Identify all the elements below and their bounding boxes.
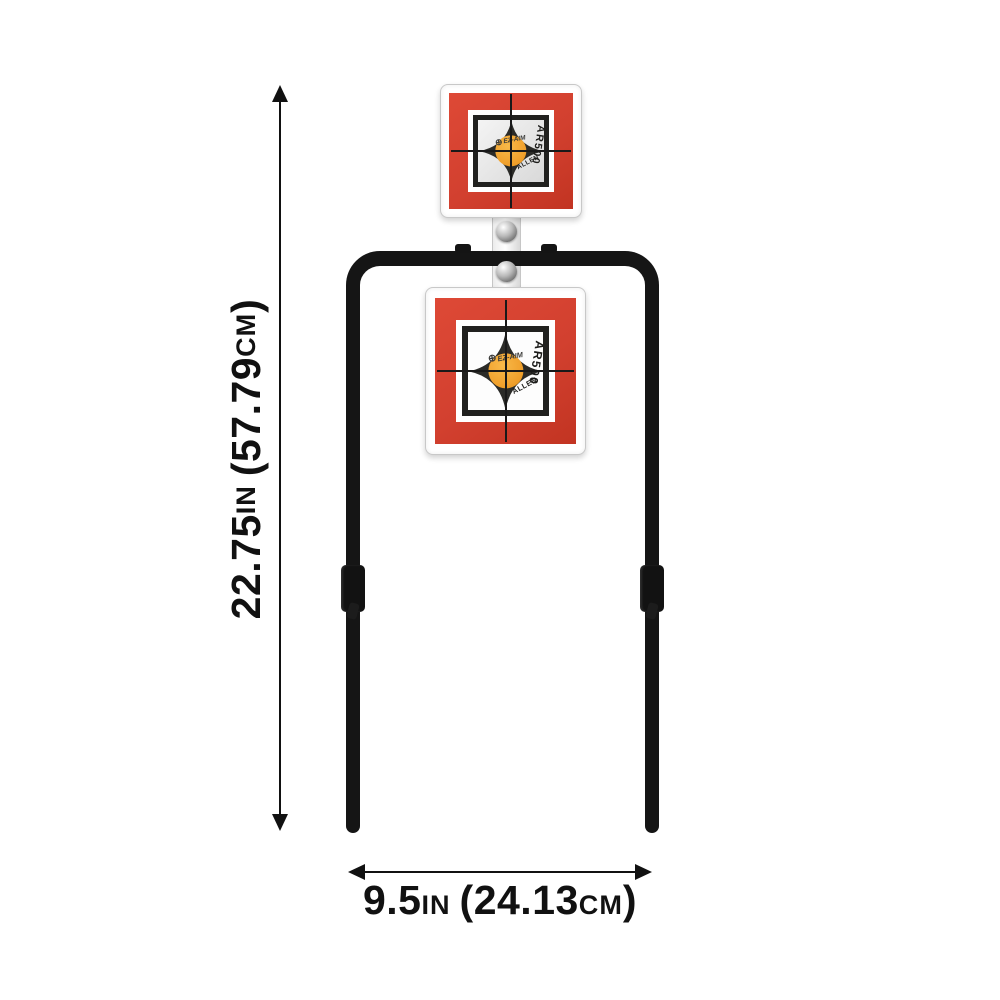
- height-unit-cm: CM: [231, 313, 262, 357]
- width-unit-cm: CM: [579, 890, 623, 920]
- width-dimension-label: 9.5IN(24.13CM): [363, 877, 637, 924]
- width-value-cm: (24.13: [460, 877, 579, 923]
- target-plate-top: ⊕ EZ-AIM AR500 ALLEN: [440, 84, 582, 218]
- frame-leg-tip-left: [346, 824, 360, 833]
- arrowhead-down-icon: [272, 814, 288, 831]
- reticle-icon: ⊕: [494, 138, 503, 148]
- crossbar-clip-right: [541, 244, 557, 253]
- width-label-suffix: ): [623, 877, 637, 923]
- product-image-canvas: 22.75IN(57.79CM) 9.5IN(24.13CM) ⊕ EZ-AIM: [0, 0, 1000, 1000]
- arrowhead-right-icon: [635, 864, 652, 880]
- rivet-ball-top: [496, 221, 517, 242]
- height-label-suffix: ): [223, 299, 270, 313]
- width-unit-in: IN: [421, 890, 450, 920]
- reticle-icon: ⊕: [487, 354, 497, 365]
- arrowhead-up-icon: [272, 85, 288, 102]
- crosshair-vertical-line: [510, 94, 512, 208]
- target-plate-bottom: ⊕ EZ-AIM AR500 ALLEN: [425, 287, 586, 455]
- height-unit-in: IN: [231, 485, 262, 514]
- height-value-in: 22.75: [223, 514, 270, 619]
- leg-clamp-left: [341, 565, 365, 612]
- leg-clamp-right: [640, 565, 664, 612]
- rivet-ball-bottom: [496, 261, 517, 282]
- height-dimension-label: 22.75IN(57.79CM): [223, 163, 269, 755]
- height-value-cm: (57.79: [223, 357, 270, 476]
- frame-leg-tip-right: [645, 824, 659, 833]
- crossbar-clip-left: [455, 244, 471, 253]
- crosshair-vertical-line: [505, 300, 507, 443]
- height-dimension-line: [279, 88, 281, 818]
- width-value-in: 9.5: [363, 877, 422, 923]
- width-dimension-line: [352, 871, 648, 873]
